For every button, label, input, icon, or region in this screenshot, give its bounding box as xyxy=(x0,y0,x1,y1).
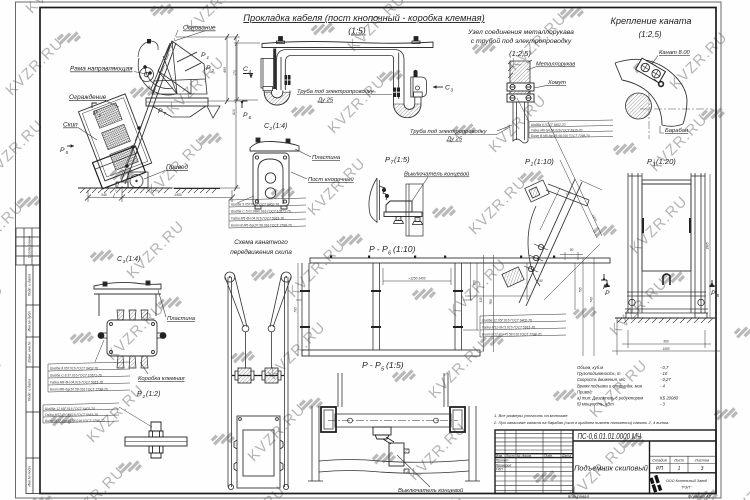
svg-text:Гайка М8-6Н.04.016 ГОСТ 5915-7: Гайка М8-6Н.04.016 ГОСТ 5915-70 xyxy=(50,381,103,385)
svg-text:5: 5 xyxy=(717,293,720,298)
svg-text:960: 960 xyxy=(663,340,669,344)
svg-text:Привод:: Привод: xyxy=(577,389,593,394)
svg-text:- 3: - 3 xyxy=(660,402,666,407)
svg-text:C: C xyxy=(445,85,450,92)
svg-text:Скип: Скип xyxy=(63,122,78,129)
svg-text:P: P xyxy=(206,65,211,72)
svg-text:315: 315 xyxy=(479,297,483,303)
svg-text:Пластина: Пластина xyxy=(167,316,196,322)
svg-text:Шайба 12.65Г.016 ГОСТ 6402-70: Шайба 12.65Г.016 ГОСТ 6402-70 xyxy=(482,319,532,323)
svg-text:6: 6 xyxy=(249,115,252,120)
svg-text:P: P xyxy=(60,147,65,154)
svg-text:(1:2,5): (1:2,5) xyxy=(509,49,531,58)
svg-text:Металлорукав: Металлорукав xyxy=(536,62,575,68)
svg-text:Стадия: Стадия xyxy=(652,458,667,463)
svg-text:1: 1 xyxy=(207,55,210,60)
svg-text:810: 810 xyxy=(232,109,236,115)
svg-text:КБ 20080: КБ 20080 xyxy=(660,395,679,400)
svg-text:Ограждение: Ограждение xyxy=(69,93,107,101)
svg-text:Грузоподъемность, т: Грузоподъемность, т xyxy=(577,371,621,376)
svg-text:5: 5 xyxy=(66,150,69,155)
svg-text:2: 2 xyxy=(142,394,146,400)
svg-text:Основание: Основание xyxy=(183,25,216,32)
svg-text:P: P xyxy=(605,290,610,297)
svg-text:1450: 1450 xyxy=(174,193,182,197)
svg-text:Инв.№ дубл.: Инв.№ дубл. xyxy=(28,310,32,331)
svg-text:ГИП: ГИП xyxy=(496,468,503,472)
svg-text:3: 3 xyxy=(701,466,704,472)
svg-text:Инв.№ подл.: Инв.№ подл. xyxy=(28,465,32,486)
svg-text:(1:4): (1:4) xyxy=(126,256,140,263)
svg-text:с трубой под электропроводку: с трубой под электропроводку xyxy=(471,37,572,45)
svg-text:ПС-0,6.01.01.0000 МЧ: ПС-0,6.01.01.0000 МЧ xyxy=(578,432,642,441)
svg-text:P - P: P - P xyxy=(369,244,388,254)
svg-text:передвижения скипа: передвижения скипа xyxy=(230,248,292,256)
svg-text:1080: 1080 xyxy=(662,347,669,351)
svg-text:Узел соединения металлорукава: Узел соединения металлорукава xyxy=(467,28,574,36)
svg-text:Гайка М6-6Н.04.016 ГОСТ 5915-7: Гайка М6-6Н.04.016 ГОСТ 5915-70 xyxy=(531,129,582,133)
svg-text:P: P xyxy=(137,391,142,398)
svg-text:Коробка клемная: Коробка клемная xyxy=(138,376,185,382)
svg-text:Изм.: Изм. xyxy=(496,454,503,458)
svg-text:795: 795 xyxy=(579,287,583,293)
svg-text:Проект: Проект xyxy=(496,459,509,463)
svg-text:Подп. и дата: Подп. и дата xyxy=(28,379,32,402)
svg-text:Копировал: Копировал xyxy=(568,494,589,499)
svg-text:50: 50 xyxy=(570,248,574,252)
svg-text:3965: 3965 xyxy=(706,242,710,249)
svg-text:540: 540 xyxy=(101,193,107,197)
svg-text:P: P xyxy=(711,290,716,297)
svg-text:- 4: - 4 xyxy=(660,383,666,388)
svg-text:Подп.: Подп. xyxy=(544,454,553,458)
svg-text:№ докум.: № докум. xyxy=(517,454,532,458)
svg-text:Гайка М5-6Н.04.016 ГОСТ 5915-7: Гайка М5-6Н.04.016 ГОСТ 5915-70 xyxy=(231,217,284,221)
svg-text:(1:10): (1:10) xyxy=(534,157,554,166)
svg-text:- 10: - 10 xyxy=(660,371,668,376)
svg-text:Формат А2: Формат А2 xyxy=(688,494,712,499)
svg-text:Лист: Лист xyxy=(673,458,685,463)
svg-text:(1:2): (1:2) xyxy=(146,391,160,398)
svg-text:495: 495 xyxy=(223,67,227,73)
svg-text:7: 7 xyxy=(164,111,167,116)
svg-text:Время подъема и опускания, мин: Время подъема и опускания, мин xyxy=(577,383,643,388)
svg-text:150: 150 xyxy=(473,280,477,286)
svg-text:P: P xyxy=(243,112,248,119)
svg-text:Подъемник скиповый: Подъемник скиповый xyxy=(574,464,648,473)
svg-text:Пластина: Пластина xyxy=(312,155,341,161)
svg-text:Шайба 6 ГОСТ 6402-70: Шайба 6 ГОСТ 6402-70 xyxy=(531,123,566,127)
svg-text:Крепление каната: Крепление каната xyxy=(610,16,691,26)
svg-text:2: 2 xyxy=(211,68,215,73)
svg-text:(1:5): (1:5) xyxy=(394,155,410,164)
svg-text:Рама направляющая: Рама направляющая xyxy=(70,66,133,73)
svg-text:"РЭП": "РЭП" xyxy=(681,486,692,490)
svg-text:Шайба 12.65Г.016 ГОСТ 6402-70: Шайба 12.65Г.016 ГОСТ 6402-70 xyxy=(45,407,95,411)
svg-text:Привод: Привод xyxy=(166,163,188,171)
svg-text:Болт М12-6gх45.58.016 ГОСТ 779: Болт М12-6gх45.58.016 ГОСТ 7798-70 xyxy=(45,419,105,423)
svg-text:P: P xyxy=(158,108,163,115)
svg-text:Шайба С.5.01.08кп.016 ГОСТ 105: Шайба С.5.01.08кп.016 ГОСТ 10571-70 xyxy=(231,210,291,214)
svg-text:3: 3 xyxy=(451,88,454,93)
svg-text:Лист: Лист xyxy=(505,454,515,458)
svg-text:(1:10): (1:10) xyxy=(393,244,416,254)
svg-text:Взам. инв.№: Взам. инв.№ xyxy=(28,341,32,362)
svg-text:Прокладка кабеля (пост кнопочн: Прокладка кабеля (пост кнопочный - короб… xyxy=(243,13,484,23)
svg-text:Выключатель концевой: Выключатель концевой xyxy=(404,171,470,178)
svg-text:Скорость движения, м/с: Скорость движения, м/с xyxy=(577,377,626,382)
svg-text:Гайка М12-6Н.5.016 ГОСТ 5915-7: Гайка М12-6Н.5.016 ГОСТ 5915-70 xyxy=(45,413,98,417)
svg-text:(1:5): (1:5) xyxy=(386,360,404,370)
svg-text:Хомут: Хомут xyxy=(547,80,566,86)
svg-text:Согласовано: Согласовано xyxy=(28,236,32,258)
svg-text:740: 740 xyxy=(590,297,594,303)
svg-text:1: 1 xyxy=(99,113,102,118)
svg-text:Болт М12-6gх45.58.016 ГОСТ 779: Болт М12-6gх45.58.016 ГОСТ 7798-70 xyxy=(482,333,542,337)
svg-text:170: 170 xyxy=(233,70,237,76)
svg-text:Объем, куб.м: Объем, куб.м xyxy=(577,365,603,370)
svg-text:а) тип: Двигатель с редуктором: а) тип: Двигатель с редуктором xyxy=(577,395,643,400)
svg-text:Барабан: Барабан xyxy=(665,128,689,134)
svg-text:ООО Котельный Завод: ООО Котельный Завод xyxy=(666,479,707,483)
svg-text:Листов: Листов xyxy=(694,458,709,463)
svg-text:б) мощность, кВт: б) мощность, кВт xyxy=(577,402,614,407)
svg-text:(1:5): (1:5) xyxy=(348,26,366,36)
svg-text:Шайба 8.65Г.016 ГОСТ 6402-70: Шайба 8.65Г.016 ГОСТ 6402-70 xyxy=(50,367,98,371)
svg-text:P: P xyxy=(93,110,98,117)
svg-text:- 0,27: - 0,27 xyxy=(660,377,671,382)
svg-text:(1:4): (1:4) xyxy=(273,123,287,130)
svg-text:Болт М8-6gх10.58.016 ГОСТ 7798: Болт М8-6gх10.58.016 ГОСТ 7798-70 xyxy=(50,388,108,392)
svg-text:Канат 8.00: Канат 8.00 xyxy=(659,50,691,56)
svg-text:P: P xyxy=(201,52,206,59)
svg-text:Пост кнопочный: Пост кнопочный xyxy=(308,176,355,183)
svg-text:Болт В.М5-6gх20.58.016 ГОСТ 77: Болт В.М5-6gх20.58.016 ГОСТ 7798-70 xyxy=(231,224,292,228)
svg-text:2. При запасовке каната на бар: 2. При запасовке каната на барабан (скип… xyxy=(493,420,669,425)
svg-text:Дата: Дата xyxy=(561,454,571,458)
svg-text:(1:2,5): (1:2,5) xyxy=(638,30,661,39)
svg-text:795: 795 xyxy=(294,307,298,313)
svg-text:Схема канатного: Схема канатного xyxy=(234,239,288,246)
svg-text:РП: РП xyxy=(656,466,663,472)
svg-text:Шайба 5.65Г.016 ГОСТ 6402-70: Шайба 5.65Г.016 ГОСТ 6402-70 xyxy=(231,203,279,207)
svg-text:(1:20): (1:20) xyxy=(656,157,676,166)
svg-text:2: 2 xyxy=(269,126,273,132)
svg-text:C: C xyxy=(243,66,248,73)
svg-text:Болт В.М6-6gх25.58.016 ГОСТ 77: Болт В.М6-6gх25.58.016 ГОСТ 7798-70 xyxy=(531,134,590,138)
svg-text:Подп. и дата: Подп. и дата xyxy=(28,274,32,297)
svg-text:1. Все размеры уточнить на мон: 1. Все размеры уточнить на монтаже. xyxy=(494,413,569,418)
svg-text:760: 760 xyxy=(489,299,493,305)
svg-text:Шайба С.8.37.016 ГОСТ 10571-70: Шайба С.8.37.016 ГОСТ 10571-70 xyxy=(50,374,102,378)
svg-text:- 0,7: - 0,7 xyxy=(660,365,669,370)
svg-text:P - P: P - P xyxy=(362,360,381,370)
svg-text:≈1250-1400: ≈1250-1400 xyxy=(409,277,426,281)
svg-text:Гайка М12-6Н.5.016 ГОСТ 5915-7: Гайка М12-6Н.5.016 ГОСТ 5915-70 xyxy=(482,326,535,330)
svg-text:Выключатель концевой: Выключатель концевой xyxy=(398,487,464,494)
svg-text:1: 1 xyxy=(678,466,681,472)
